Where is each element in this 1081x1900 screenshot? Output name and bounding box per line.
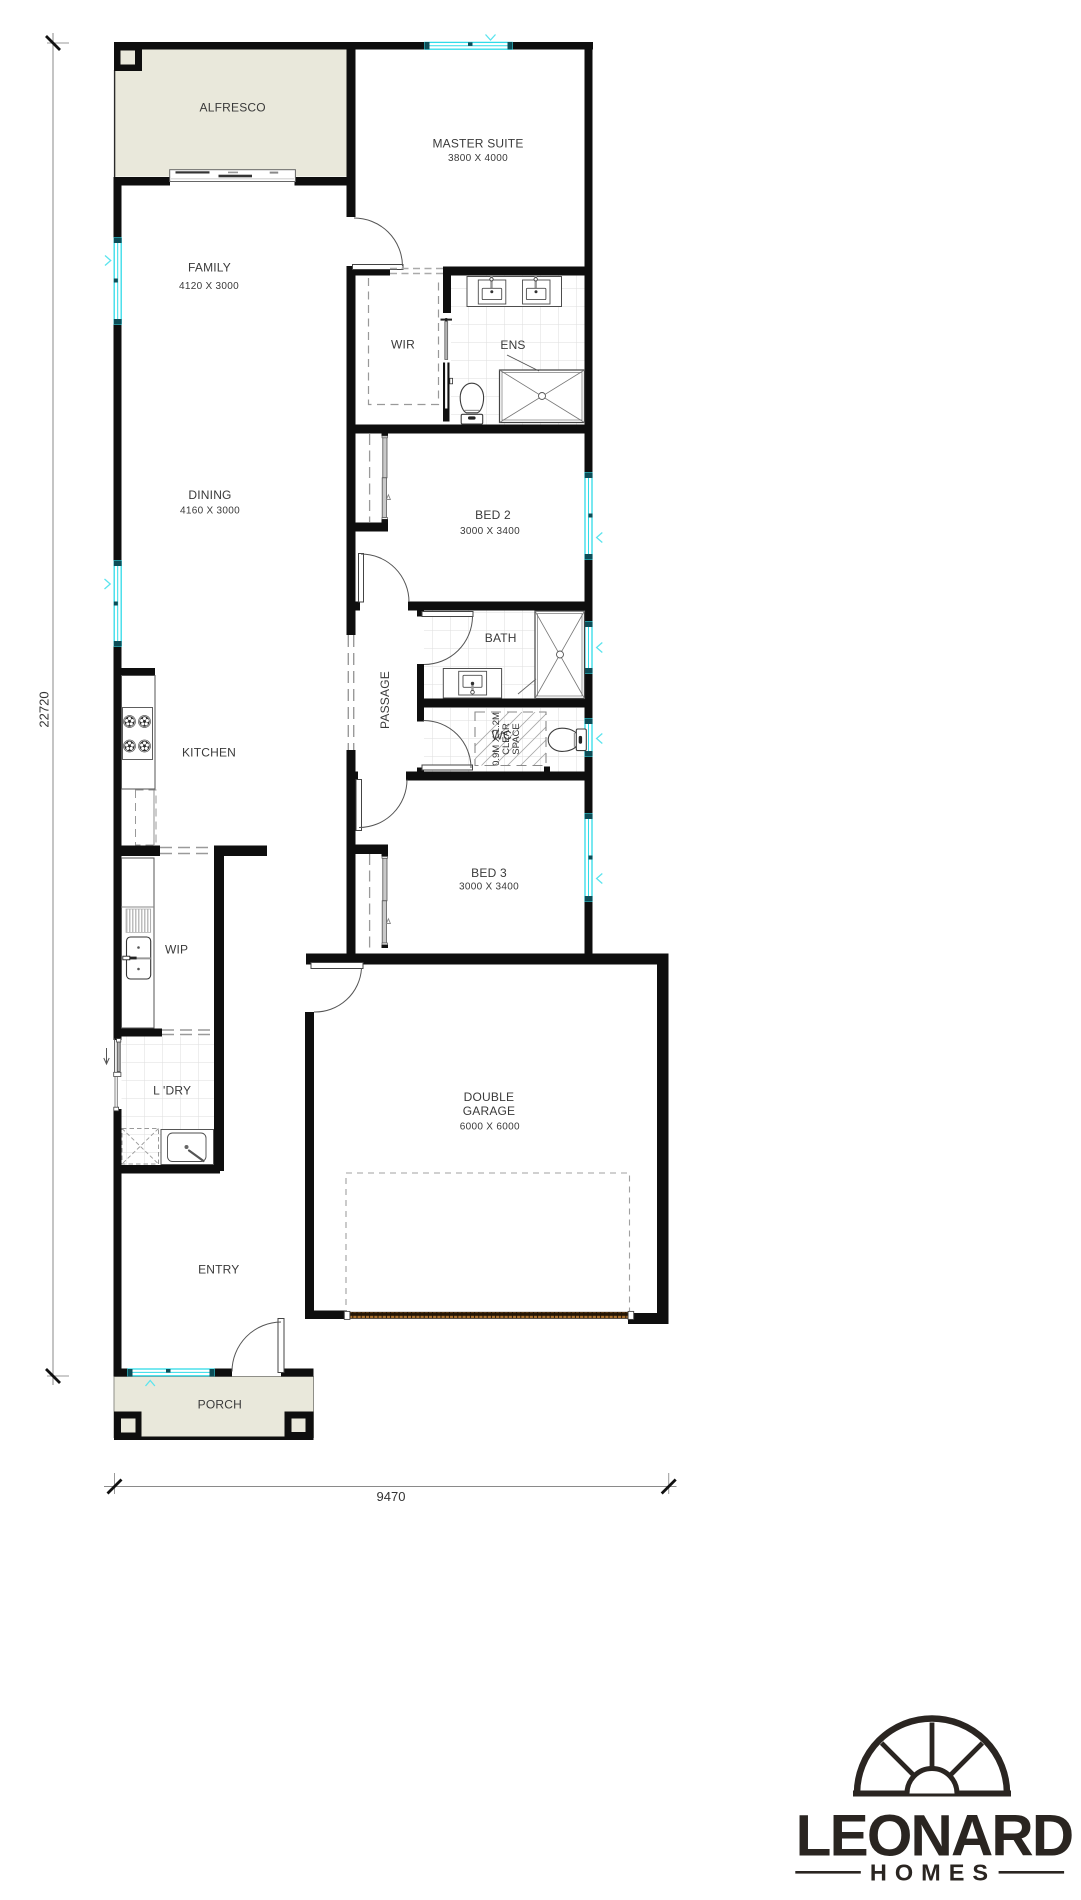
- svg-text:WIR: WIR: [391, 338, 415, 352]
- svg-text:KITCHEN: KITCHEN: [182, 746, 236, 760]
- svg-text:ENTRY: ENTRY: [198, 1263, 239, 1277]
- svg-text:9470: 9470: [377, 1489, 406, 1504]
- svg-text:HOMES: HOMES: [870, 1860, 996, 1886]
- svg-text:BED 3: BED 3: [471, 866, 507, 880]
- svg-text:22720: 22720: [37, 691, 52, 727]
- svg-text:DINING: DINING: [188, 488, 231, 502]
- svg-text:GARAGE: GARAGE: [463, 1104, 516, 1118]
- svg-text:4120 X 3000: 4120 X 3000: [179, 281, 239, 292]
- svg-text:ENS: ENS: [500, 338, 525, 352]
- svg-text:4160 X 3000: 4160 X 3000: [180, 506, 240, 517]
- svg-text:SPACE: SPACE: [511, 723, 522, 755]
- svg-text:6000 X 6000: 6000 X 6000: [460, 1122, 520, 1133]
- svg-text:L 'DRY: L 'DRY: [153, 1084, 191, 1098]
- svg-text:FAMILY: FAMILY: [188, 260, 231, 274]
- svg-text:3000 X 3400: 3000 X 3400: [460, 526, 520, 537]
- svg-text:BED 2: BED 2: [475, 508, 511, 522]
- svg-text:3800 X 4000: 3800 X 4000: [448, 153, 508, 164]
- svg-text:DOUBLE: DOUBLE: [464, 1090, 515, 1104]
- svg-text:BATH: BATH: [485, 631, 517, 645]
- svg-text:PORCH: PORCH: [198, 1398, 242, 1412]
- svg-text:3000 X 3400: 3000 X 3400: [459, 882, 519, 893]
- svg-text:ALFRESCO: ALFRESCO: [200, 101, 266, 115]
- svg-text:WIP: WIP: [165, 943, 188, 957]
- svg-text:PASSAGE: PASSAGE: [378, 671, 392, 729]
- svg-text:MASTER SUITE: MASTER SUITE: [432, 136, 523, 150]
